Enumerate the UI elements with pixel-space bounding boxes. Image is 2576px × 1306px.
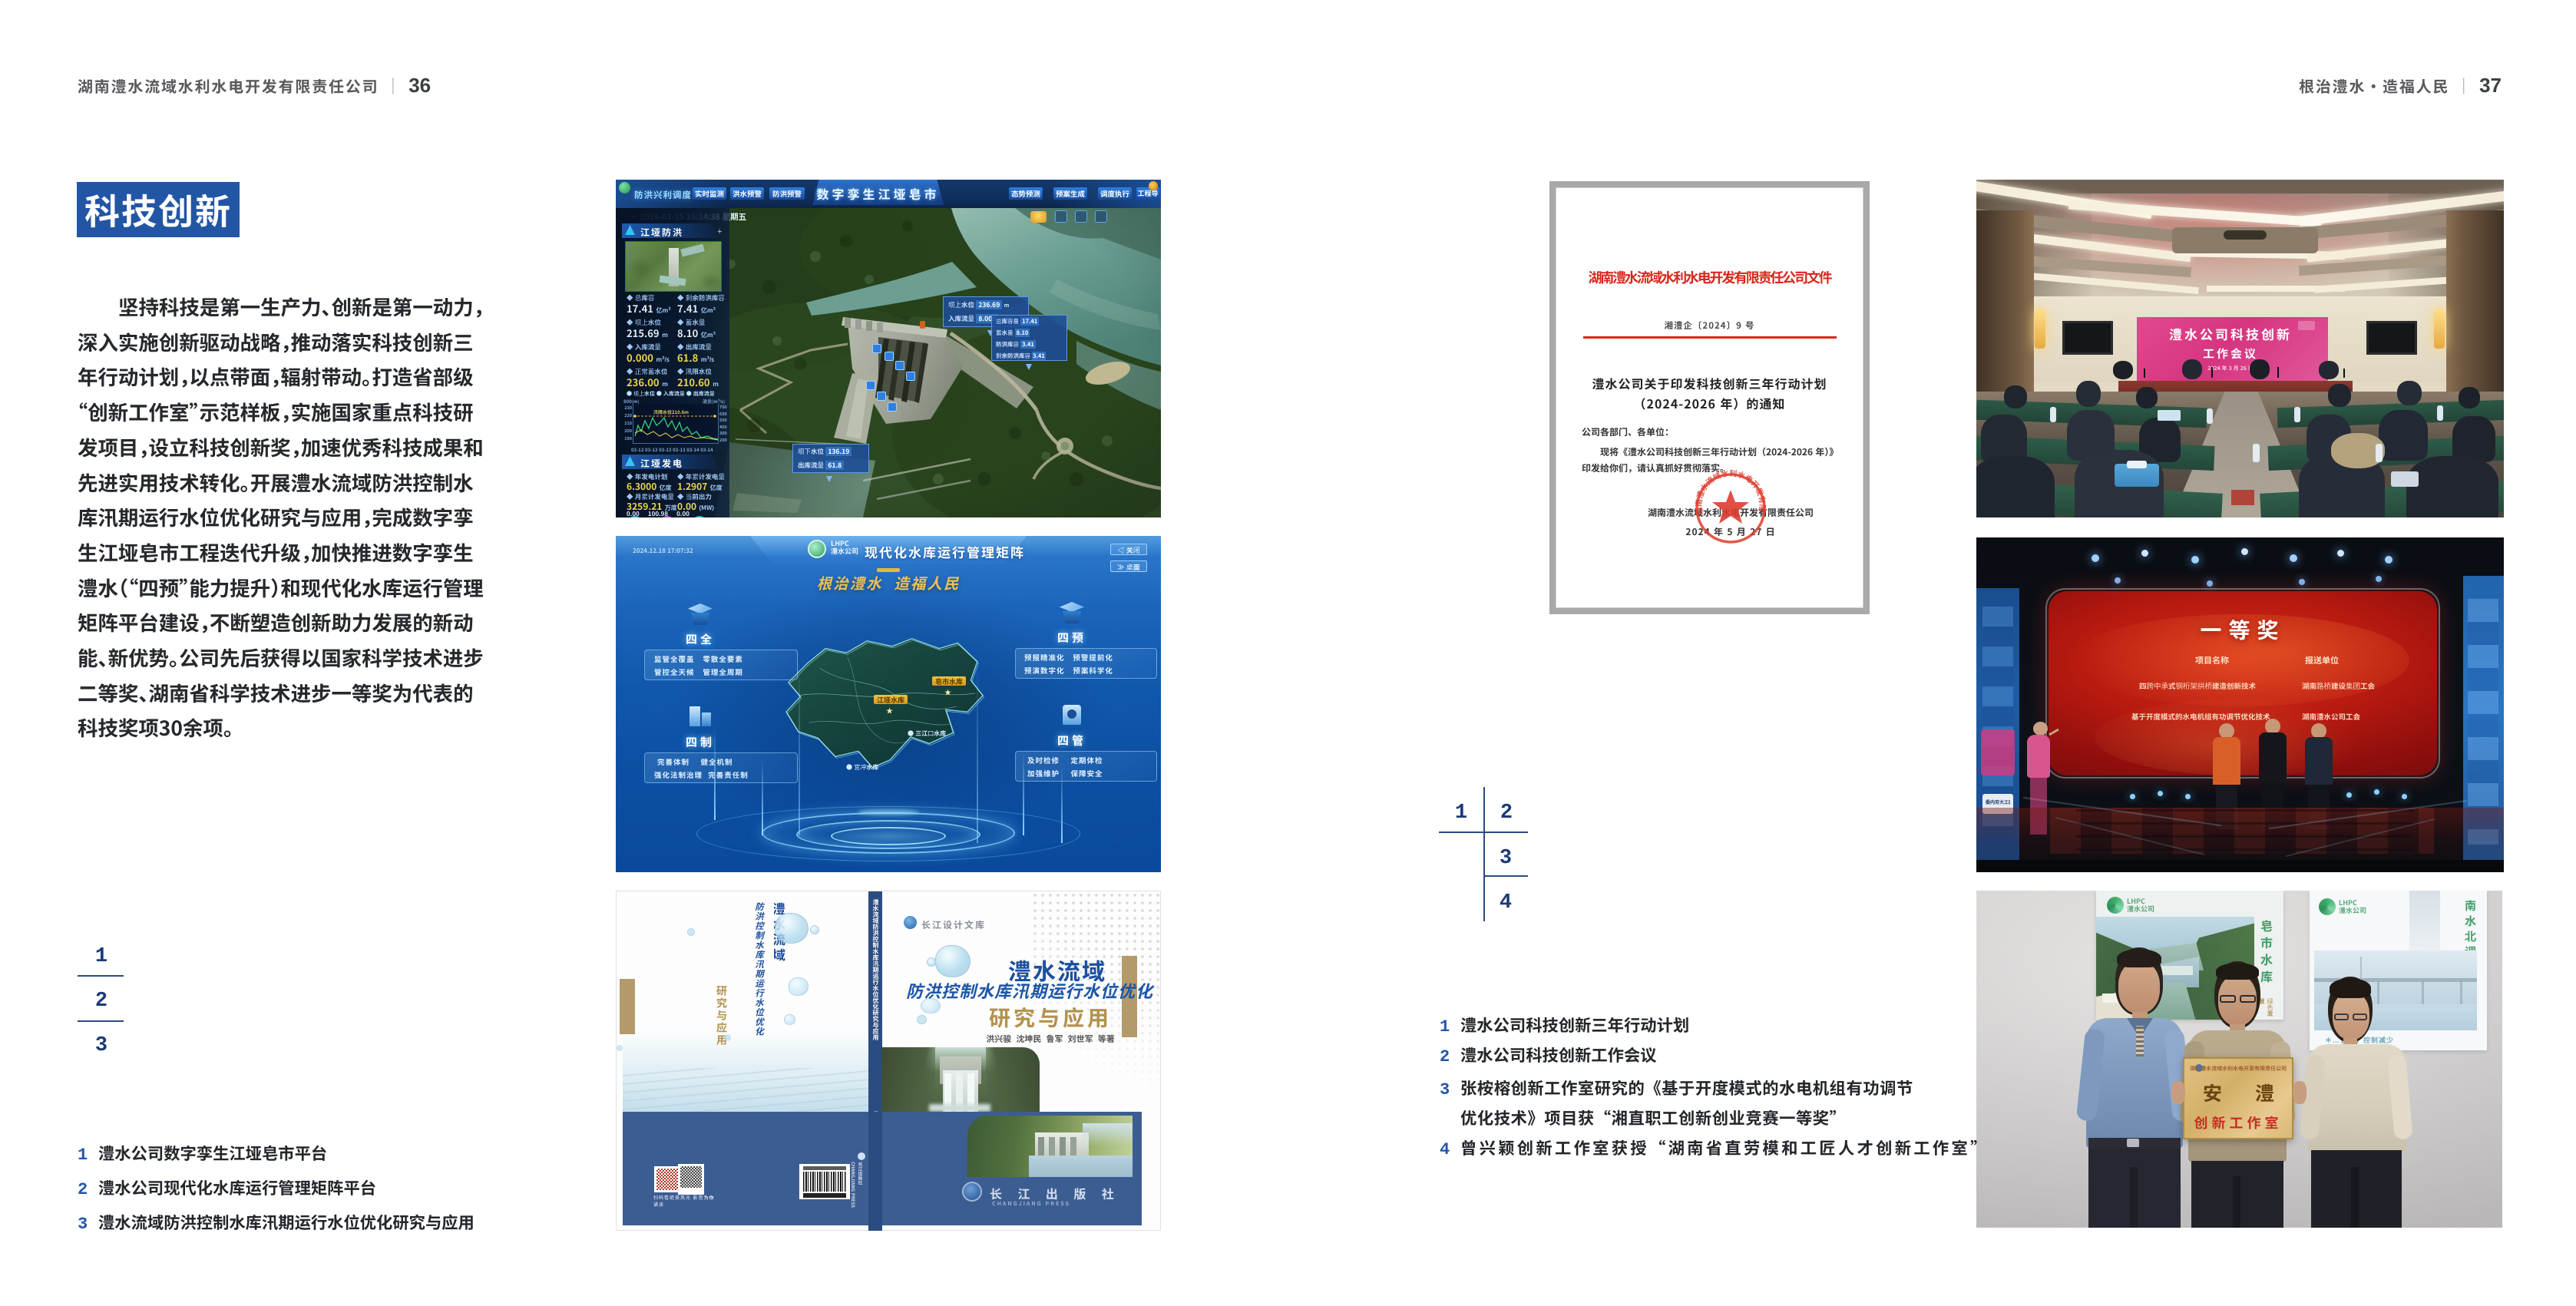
svg-text:汛限水位210.6m: 汛限水位210.6m — [653, 408, 689, 415]
